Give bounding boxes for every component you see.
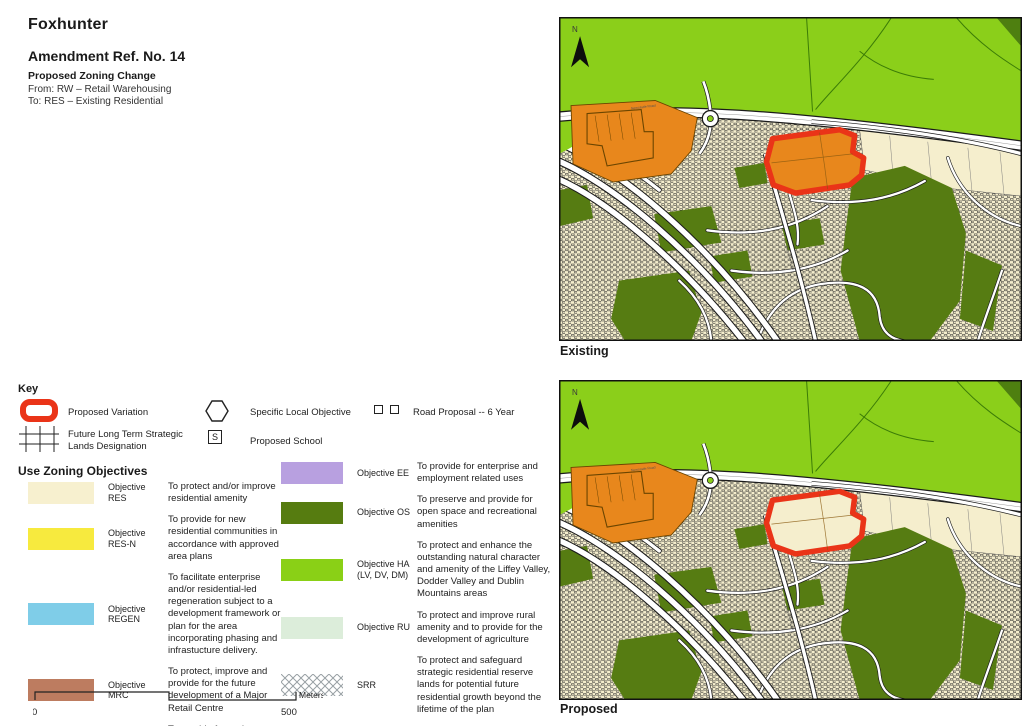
key-proposed-variation-label: Proposed Variation — [68, 407, 148, 419]
zone-code: Objective REGEN — [108, 604, 162, 626]
hexagon-icon — [204, 399, 230, 423]
proposed-map-label: Proposed — [560, 702, 618, 716]
zone-code: Objective RU — [357, 622, 411, 633]
existing-map — [559, 17, 1022, 341]
proposed-map-figure — [559, 380, 1022, 700]
zone-description: To protect and safeguard strategic resid… — [417, 655, 551, 716]
scale-zero: 0 — [33, 707, 37, 718]
change-from: From: RW – Retail Warehousing — [28, 84, 171, 95]
res-swatch — [28, 482, 94, 504]
proposed-map — [559, 380, 1022, 700]
zone-description: To facilitate enterprise and/or resident… — [168, 572, 282, 657]
key-future-lands-label: Future Long Term Strategic Lands Designa… — [68, 429, 200, 453]
zoning-column-right: Objective EE To provide for enterprise a… — [281, 461, 551, 725]
zoning-row-res-n: Objective RES-N To provide for new resid… — [28, 514, 282, 563]
ru-swatch — [281, 617, 343, 639]
change-heading: Proposed Zoning Change — [28, 70, 156, 82]
zone-description: To protect and enhance the outstanding n… — [417, 540, 551, 601]
proposed-school-icon: S — [208, 430, 222, 444]
zoning-heading: Use Zoning Objectives — [18, 464, 147, 478]
scale-bar: 0 500 Meters — [33, 689, 323, 719]
zone-code: Objective OS — [357, 507, 411, 518]
zone-description: To protect and/or improve residential am… — [168, 481, 282, 505]
road-proposal-square-icon — [374, 405, 383, 414]
key-proposed-school-label: Proposed School — [250, 436, 322, 448]
scale-max: 500 — [281, 707, 297, 718]
res-n-swatch — [28, 528, 94, 550]
zoning-row-os: Objective OS To preserve and provide for… — [281, 494, 551, 530]
zone-code: SRR — [357, 680, 411, 691]
zone-code: Objective RES — [108, 482, 162, 504]
ha-swatch — [281, 559, 343, 581]
zone-description: To provide for new residential communiti… — [168, 514, 282, 563]
amendment-ref: Amendment Ref. No. 14 — [28, 48, 185, 64]
existing-map-label: Existing — [560, 344, 609, 358]
change-to: To: RES – Existing Residential — [28, 96, 163, 107]
page-title: Foxhunter — [28, 16, 108, 34]
zoning-row-res: Objective RES To protect and/or improve … — [28, 481, 282, 505]
zone-code: Objective HA (LV, DV, DM) — [357, 559, 411, 581]
key-road-proposal-label: Road Proposal -- 6 Year — [413, 407, 514, 419]
regen-swatch — [28, 603, 94, 625]
key-heading: Key — [18, 383, 38, 395]
proposed-variation-icon — [20, 399, 58, 422]
zone-code: Objective EE — [357, 468, 411, 479]
os-swatch — [281, 502, 343, 524]
zone-description: To provide for enterprise and employment… — [417, 461, 551, 485]
zone-description: To protect and improve rural amenity and… — [417, 610, 551, 646]
road-proposal-icon — [374, 405, 399, 414]
zoning-row-regen: Objective REGEN To facilitate enterprise… — [28, 572, 282, 657]
page: Foxhunter Amendment Ref. No. 14 Proposed… — [0, 0, 1024, 726]
road-proposal-square-icon — [390, 405, 399, 414]
existing-map-figure — [559, 17, 1022, 341]
zoning-row-ru: Objective RU To protect and improve rura… — [281, 610, 551, 646]
ee-swatch — [281, 462, 343, 484]
key-specific-local-objective-label: Specific Local Objective — [250, 407, 351, 419]
zone-description: To preserve and provide for open space a… — [417, 494, 551, 530]
zoning-row-ha: Objective HA (LV, DV, DM) To protect and… — [281, 540, 551, 601]
future-strategic-lands-icon — [16, 424, 62, 454]
scale-unit: Meters — [299, 690, 323, 700]
zoning-row-ee: Objective EE To provide for enterprise a… — [281, 461, 551, 485]
zone-code: Objective RES-N — [108, 528, 162, 550]
